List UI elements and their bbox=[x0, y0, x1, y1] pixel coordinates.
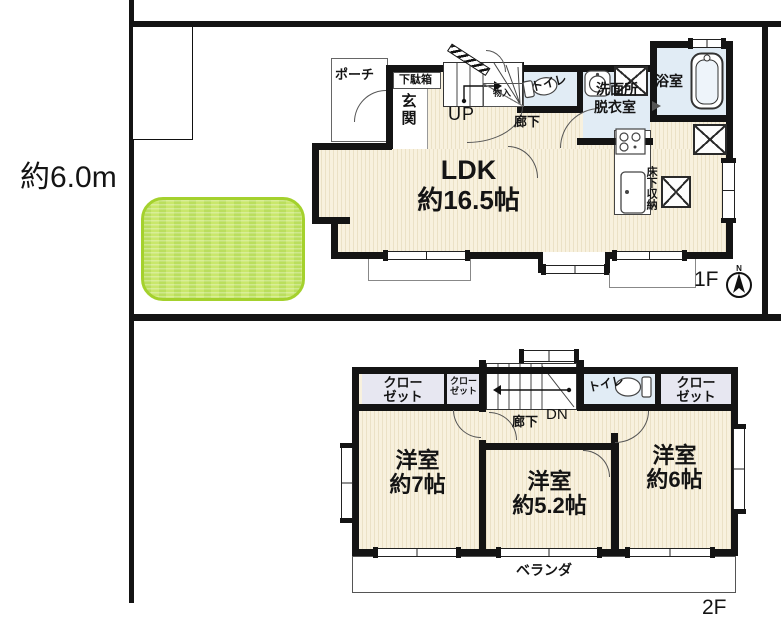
room-label-washroom-1: 洗面所 bbox=[596, 82, 638, 97]
stove-icon bbox=[615, 128, 646, 155]
closet-text-2: ゼット bbox=[383, 390, 422, 404]
compass-north-letter: N bbox=[736, 264, 742, 273]
room-label-bedroom-mid: 洋室 約5.2帖 bbox=[486, 470, 613, 518]
room-label-porch: ポーチ bbox=[335, 68, 374, 82]
window bbox=[722, 159, 735, 222]
window bbox=[341, 444, 353, 522]
site-notch bbox=[133, 27, 193, 140]
floor1-badge: 1F bbox=[694, 268, 719, 291]
site-dimension-label: 約6.0m bbox=[20, 161, 117, 194]
window bbox=[542, 265, 608, 274]
lawn-area bbox=[141, 197, 305, 301]
wall bbox=[577, 65, 583, 113]
compass-icon: N bbox=[722, 262, 756, 300]
wall bbox=[386, 65, 393, 149]
ldk-name: LDK bbox=[441, 156, 497, 186]
bedroom-name: 洋室 bbox=[527, 470, 571, 494]
site-boundary-top bbox=[129, 21, 781, 27]
closet-text-1: クロー bbox=[676, 376, 715, 390]
room-label-shoe-cabinet: 下駄箱 bbox=[399, 74, 432, 86]
room-label-washroom-2: 脱衣室 bbox=[594, 100, 636, 115]
wall bbox=[356, 367, 738, 374]
wall bbox=[517, 106, 583, 113]
door-arc bbox=[486, 50, 506, 72]
window bbox=[374, 548, 460, 557]
window bbox=[520, 350, 578, 362]
room-label-hallway: 廊下 bbox=[514, 115, 540, 129]
window bbox=[497, 548, 601, 557]
f1-recess-knockout bbox=[543, 252, 605, 260]
stairs-down-label: DN bbox=[546, 407, 568, 424]
room-label-closet-left: クロー ゼット bbox=[364, 376, 442, 405]
bedroom-size: 約5.2帖 bbox=[512, 494, 587, 518]
kitchen-sink-icon bbox=[619, 170, 647, 215]
closet-text-2: ゼット bbox=[676, 390, 715, 404]
window bbox=[689, 39, 725, 48]
bathtub-icon bbox=[690, 52, 724, 110]
storage-hatch-icon bbox=[693, 124, 727, 155]
underfloor-storage-icon bbox=[661, 176, 691, 208]
bedroom-name: 洋室 bbox=[652, 444, 696, 468]
wall bbox=[577, 404, 738, 411]
room-label-underfloor-storage: 床下収納 bbox=[645, 166, 657, 210]
wall bbox=[479, 440, 486, 556]
wall bbox=[312, 143, 319, 223]
window bbox=[733, 425, 745, 513]
window bbox=[613, 251, 686, 260]
window bbox=[626, 548, 714, 557]
floor2-badge: 2F bbox=[702, 596, 727, 619]
wall bbox=[538, 252, 543, 273]
room-label-entrance: 玄関 bbox=[399, 93, 416, 127]
bedroom-size: 約7帖 bbox=[389, 473, 445, 497]
room-label-storage: 物入 bbox=[493, 89, 511, 99]
room-label-hallway: 廊下 bbox=[512, 415, 538, 429]
ldk-size: 約16.5帖 bbox=[417, 186, 520, 215]
site-boundary-right bbox=[762, 21, 768, 320]
wall bbox=[479, 443, 619, 450]
room-label-bathroom: 浴室 bbox=[655, 74, 683, 89]
room-label-closet-mid: クロー ゼット bbox=[447, 377, 480, 397]
closet-text-2: ゼット bbox=[450, 387, 477, 397]
room-label-bedroom-left: 洋室 約7帖 bbox=[355, 449, 480, 497]
floor-plan-canvas: 約6.0m bbox=[0, 0, 781, 626]
f1-terrace-right bbox=[609, 258, 696, 288]
wall bbox=[726, 41, 733, 259]
folding-door-icon bbox=[652, 101, 661, 111]
closet-text-1: クロー bbox=[383, 376, 422, 390]
room-label-bedroom-right: 洋室 約6帖 bbox=[618, 444, 731, 492]
veranda-label: ベランダ bbox=[352, 563, 736, 578]
stairs-up-label: UP bbox=[448, 105, 475, 125]
bedroom-name: 洋室 bbox=[395, 449, 439, 473]
room-label-closet-right: クロー ゼット bbox=[663, 376, 729, 405]
bedroom-size: 約6帖 bbox=[646, 468, 702, 492]
window bbox=[384, 251, 469, 260]
room-label-ldk: LDK 約16.5帖 bbox=[396, 156, 541, 214]
wall bbox=[605, 252, 610, 273]
wall bbox=[312, 143, 392, 150]
site-boundary-bottom bbox=[129, 314, 781, 321]
f1-terrace-left bbox=[368, 258, 471, 281]
wall bbox=[653, 115, 733, 122]
